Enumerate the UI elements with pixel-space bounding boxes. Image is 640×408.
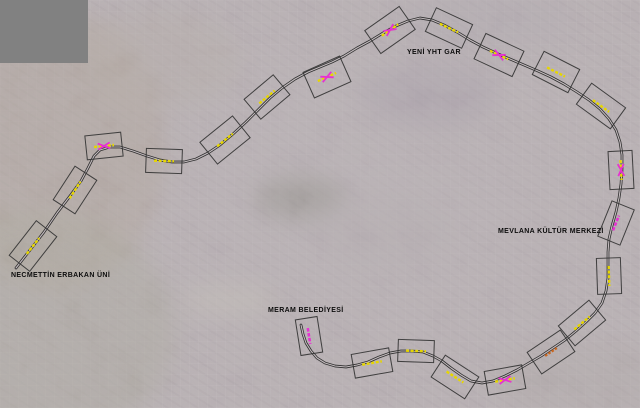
map-label: MERAM BELEDİYESİ	[268, 307, 344, 314]
map-label: YENİ YHT GAR	[407, 49, 461, 56]
route-map-canvas	[0, 0, 640, 408]
map-label: NECMETTİN ERBAKAN ÜNİ	[11, 272, 110, 279]
satellite-map: YENİ YHT GARMEVLANA KÜLTÜR MERKEZİNECMET…	[0, 0, 640, 408]
gray-coverage-rectangle	[0, 0, 88, 63]
map-label: MEVLANA KÜLTÜR MERKEZİ	[498, 228, 604, 235]
terrain-grain	[0, 0, 640, 408]
